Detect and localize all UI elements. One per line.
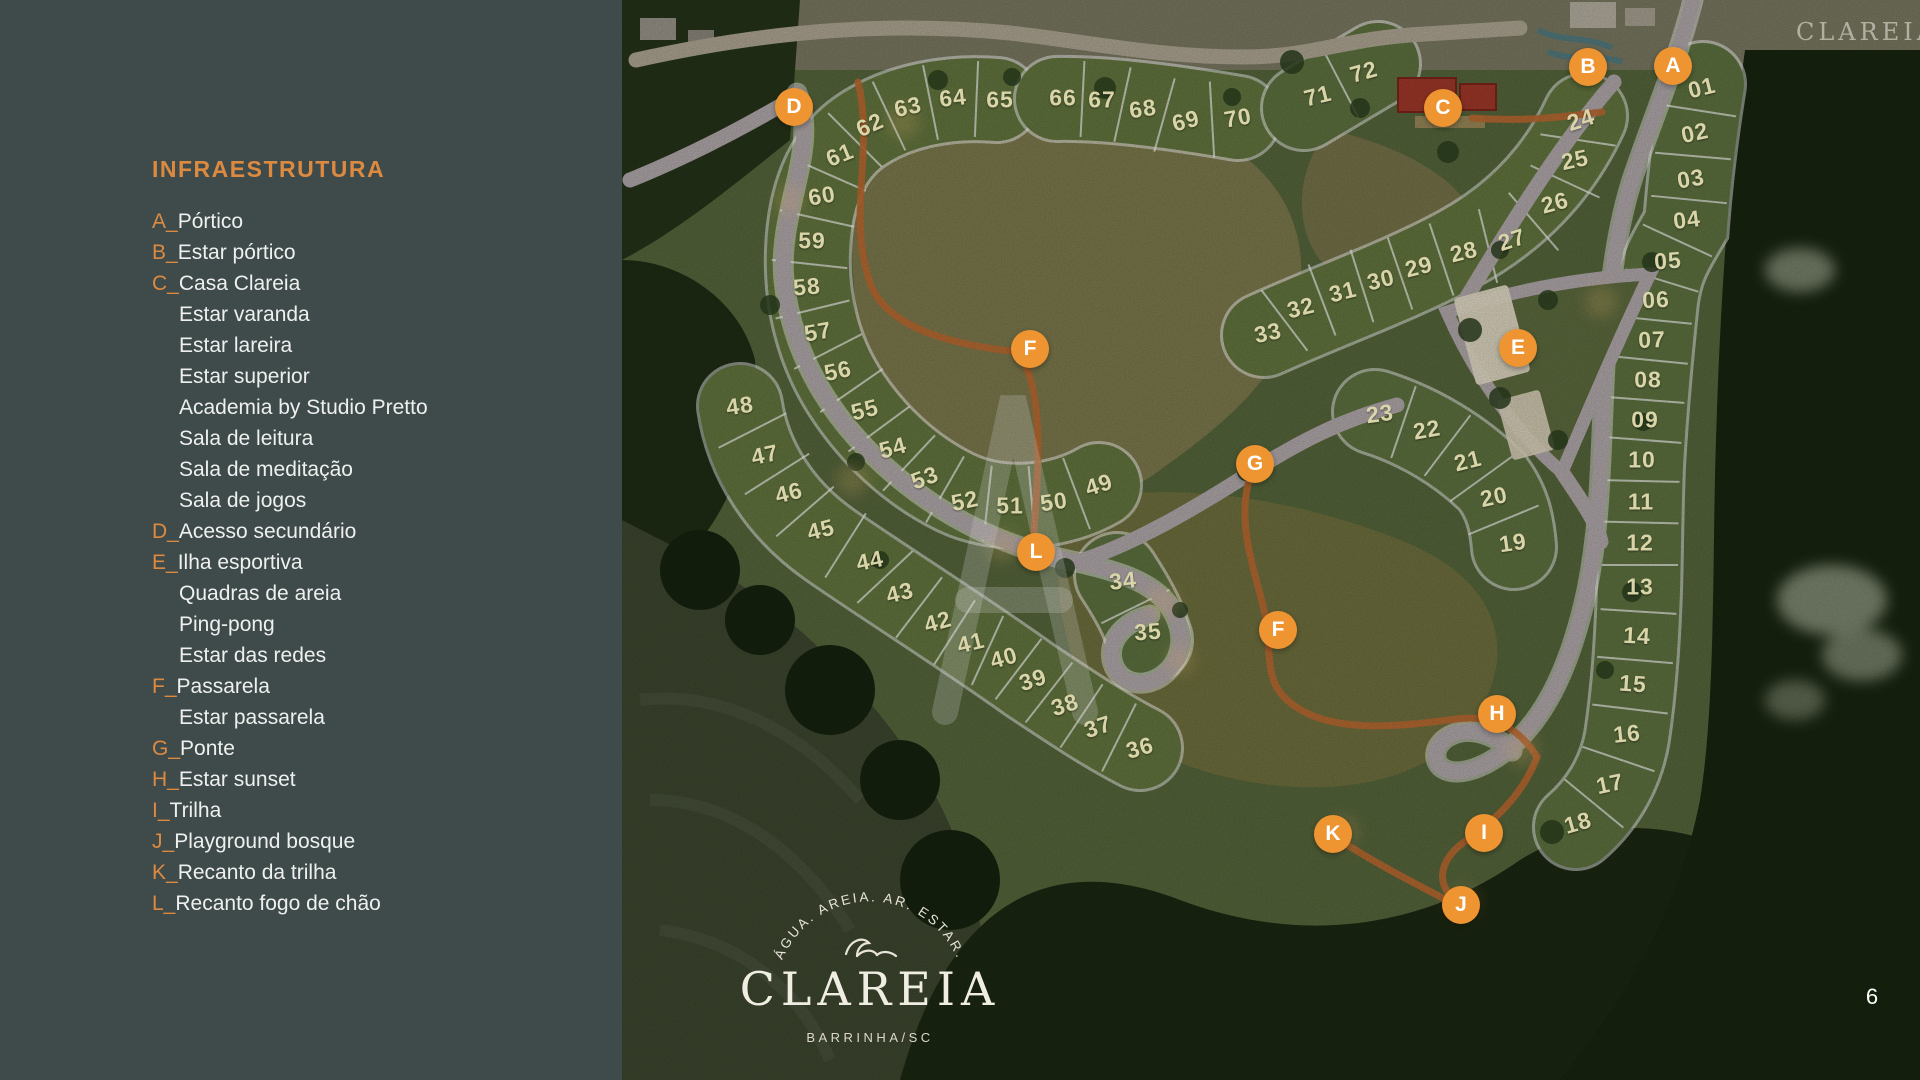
masterplan-page: 0102030405060708091011121314151617181920… [0, 0, 1920, 1080]
legend-label: Estar superior [179, 365, 310, 388]
legend-letter: D_ [152, 520, 179, 543]
legend-subitem: Academia by Studio Pretto [152, 392, 428, 423]
legend-subitem: Estar das redes [152, 640, 428, 671]
legend-label: Trilha [170, 799, 222, 822]
legend-subitem: Sala de leitura [152, 423, 428, 454]
legend-item-H: H_Estar sunset [152, 764, 428, 795]
legend-subitem: Estar varanda [152, 299, 428, 330]
legend-label: Playground bosque [174, 830, 355, 853]
legend-subitem: Ping-pong [152, 609, 428, 640]
legend-label: Academia by Studio Pretto [179, 396, 428, 419]
legend-label: Acesso secundário [179, 520, 356, 543]
legend-label: Estar lareira [179, 334, 292, 357]
legend-label: Sala de jogos [179, 489, 306, 512]
legend-letter: A_ [152, 210, 178, 233]
legend-sidebar: INFRAESTRUTURA A_PórticoB_Estar pórticoC… [0, 0, 622, 1080]
legend-subitem: Estar superior [152, 361, 428, 392]
legend-label: Passarela [177, 675, 270, 698]
legend-letter: K_ [152, 861, 178, 884]
legend-item-C: C_Casa Clareia [152, 268, 428, 299]
legend-label: Ilha esportiva [178, 551, 303, 574]
legend-item-L: L_Recanto fogo de chão [152, 888, 428, 919]
legend-letter: L_ [152, 892, 175, 915]
legend-subitem: Estar passarela [152, 702, 428, 733]
legend-item-F: F_Passarela [152, 671, 428, 702]
legend-label: Estar pórtico [178, 241, 296, 264]
legend-item-D: D_Acesso secundário [152, 516, 428, 547]
legend-label: Recanto da trilha [178, 861, 337, 884]
legend-item-A: A_Pórtico [152, 206, 428, 237]
legend-item-K: K_Recanto da trilha [152, 857, 428, 888]
infrastructure-list: A_PórticoB_Estar pórticoC_Casa ClareiaEs… [152, 206, 428, 919]
legend-label: Pórtico [178, 210, 243, 233]
legend-subitem: Estar lareira [152, 330, 428, 361]
logo-arc: ÁGUA. AREIA. AR. ESTAR. [750, 838, 990, 968]
legend-label: Estar das redes [179, 644, 326, 667]
legend-letter: I_ [152, 799, 170, 822]
legend-letter: C_ [152, 272, 179, 295]
legend-item-I: I_Trilha [152, 795, 428, 826]
legend-label: Quadras de areia [179, 582, 341, 605]
legend-letter: E_ [152, 551, 178, 574]
page-number: 6 [1856, 984, 1888, 1010]
legend-letter: J_ [152, 830, 174, 853]
legend-letter: G_ [152, 737, 180, 760]
legend-letter: H_ [152, 768, 179, 791]
legend-subitem: Sala de jogos [152, 485, 428, 516]
legend-label: Estar passarela [179, 706, 325, 729]
logo-wordmark: CLAREIA [738, 962, 1002, 1016]
legend-label: Estar sunset [179, 768, 296, 791]
legend-item-B: B_Estar pórtico [152, 237, 428, 268]
legend-letter: B_ [152, 241, 178, 264]
legend-item-J: J_Playground bosque [152, 826, 428, 857]
legend-label: Ponte [180, 737, 235, 760]
clareia-logo: ÁGUA. AREIA. AR. ESTAR. CLAREIA BARRINHA… [738, 838, 1002, 1045]
legend-label: Ping-pong [179, 613, 275, 636]
legend-label: Casa Clareia [179, 272, 300, 295]
legend-subitem: Quadras de areia [152, 578, 428, 609]
legend-item-E: E_Ilha esportiva [152, 547, 428, 578]
corner-watermark: CLAREIA [1796, 18, 1920, 46]
legend-letter: F_ [152, 675, 177, 698]
legend-label: Sala de meditação [179, 458, 353, 481]
legend-item-G: G_Ponte [152, 733, 428, 764]
wave-icon [846, 940, 896, 956]
legend-label: Estar varanda [179, 303, 310, 326]
logo-location: BARRINHA/SC [738, 1030, 1002, 1045]
legend-subitem: Sala de meditação [152, 454, 428, 485]
legend-label: Sala de leitura [179, 427, 313, 450]
legend-label: Recanto fogo de chão [175, 892, 381, 915]
legend-title: INFRAESTRUTURA [152, 156, 385, 183]
